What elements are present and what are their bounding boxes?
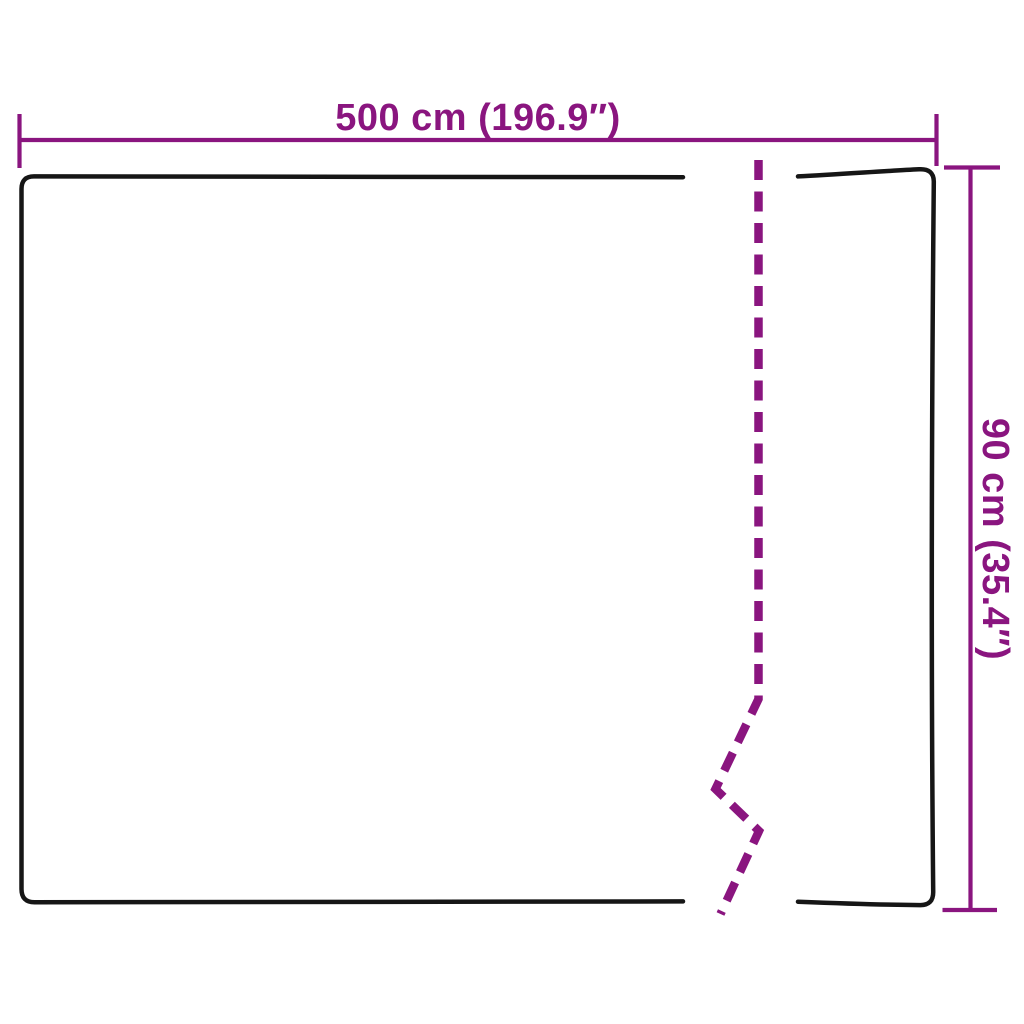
width-dimension: 500 cm (196.9″) bbox=[20, 97, 937, 168]
height-dimension-label: 90 cm (35.4″) bbox=[974, 418, 1016, 660]
height-dimension: 90 cm (35.4″) bbox=[943, 168, 1017, 911]
dimension-diagram: 500 cm (196.9″) 90 cm (35.4″) bbox=[0, 0, 1024, 1024]
product-outline-main bbox=[22, 176, 684, 902]
fold-dashed-line bbox=[716, 160, 760, 914]
product-outline-right bbox=[798, 169, 934, 905]
width-dimension-label: 500 cm (196.9″) bbox=[335, 97, 621, 139]
dimension-diagram-canvas: 500 cm (196.9″) 90 cm (35.4″) bbox=[0, 0, 1024, 1024]
